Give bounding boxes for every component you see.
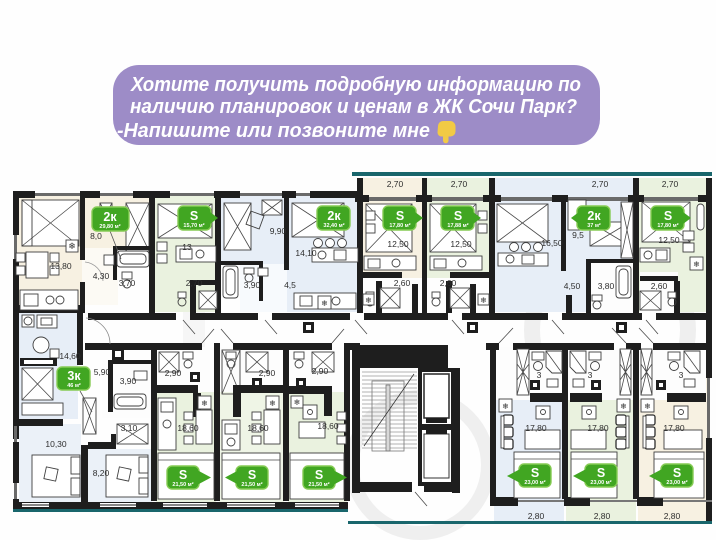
svg-text:❄: ❄ (693, 260, 700, 269)
svg-text:37 м²: 37 м² (587, 222, 601, 229)
svg-text:S: S (396, 209, 404, 223)
svg-text:2,80: 2,80 (594, 511, 611, 521)
svg-text:17,80 м²: 17,80 м² (657, 222, 678, 229)
svg-text:S: S (190, 209, 198, 223)
svg-text:23,00 м²: 23,00 м² (524, 479, 545, 486)
svg-text:15,70 м²: 15,70 м² (183, 222, 204, 229)
svg-text:3: 3 (679, 370, 684, 380)
svg-text:2,60: 2,60 (440, 278, 457, 288)
svg-text:3,80: 3,80 (598, 281, 615, 291)
svg-text:17,80: 17,80 (663, 423, 685, 433)
svg-text:5,90: 5,90 (94, 367, 111, 377)
svg-text:2,90: 2,90 (259, 368, 276, 378)
svg-text:32,40 м²: 32,40 м² (323, 222, 344, 229)
svg-text:S: S (597, 466, 605, 480)
svg-text:8,0: 8,0 (90, 231, 102, 241)
svg-text:10,30: 10,30 (45, 439, 67, 449)
svg-text:4,50: 4,50 (564, 281, 581, 291)
svg-text:❄: ❄ (620, 402, 627, 411)
svg-text:❄: ❄ (502, 402, 509, 411)
svg-text:2к: 2к (103, 210, 117, 224)
svg-text:14,60: 14,60 (59, 351, 81, 361)
svg-text:2,70: 2,70 (592, 179, 609, 189)
svg-text:21,50 м²: 21,50 м² (241, 481, 262, 488)
svg-text:Хотите получить подробную инфо: Хотите получить подробную информацию по (130, 74, 581, 96)
svg-text:23,00 м²: 23,00 м² (590, 479, 611, 486)
svg-text:18,60: 18,60 (247, 423, 269, 433)
svg-text:9,5: 9,5 (572, 230, 584, 240)
svg-text:S: S (531, 466, 539, 480)
svg-text:8,20: 8,20 (93, 468, 110, 478)
svg-text:2,60: 2,60 (651, 281, 668, 291)
svg-text:❄: ❄ (480, 296, 487, 305)
svg-text:3,90: 3,90 (120, 376, 137, 386)
svg-text:❄: ❄ (201, 399, 208, 408)
svg-text:12,50: 12,50 (450, 239, 472, 249)
svg-text:21,50 м²: 21,50 м² (172, 481, 193, 488)
svg-text:16,50: 16,50 (541, 238, 563, 248)
svg-text:2,70: 2,70 (387, 179, 404, 189)
svg-text:12,50: 12,50 (658, 235, 680, 245)
svg-text:❄: ❄ (321, 299, 328, 308)
svg-text:46 м²: 46 м² (67, 382, 81, 389)
svg-text:9,90: 9,90 (270, 226, 287, 236)
svg-text:2,80: 2,80 (528, 511, 545, 521)
svg-text:❄: ❄ (644, 402, 651, 411)
svg-text:наличию планировок и ценам в Ж: наличию планировок и ценам в ЖК Сочи Пар… (130, 96, 577, 118)
svg-text:S: S (248, 468, 256, 482)
svg-text:❄: ❄ (68, 241, 76, 251)
svg-text:12,50: 12,50 (387, 239, 409, 249)
svg-text:18,60: 18,60 (177, 423, 199, 433)
svg-text:2,70: 2,70 (186, 278, 203, 288)
svg-text:2,80: 2,80 (664, 511, 681, 521)
svg-text:3,90: 3,90 (244, 280, 261, 290)
svg-text:2,90: 2,90 (312, 366, 329, 376)
svg-text:S: S (315, 468, 323, 482)
svg-text:S: S (664, 209, 672, 223)
svg-text:S: S (673, 466, 681, 480)
svg-text:17,80: 17,80 (525, 423, 547, 433)
svg-text:13,80: 13,80 (50, 261, 72, 271)
svg-text:21,50 м²: 21,50 м² (308, 481, 329, 488)
svg-text:2к: 2к (327, 209, 341, 223)
svg-text:18,60: 18,60 (317, 421, 339, 431)
svg-text:S: S (454, 209, 462, 223)
svg-text:2,70: 2,70 (662, 179, 679, 189)
svg-text:❄: ❄ (365, 296, 372, 305)
svg-text:❄: ❄ (294, 398, 301, 407)
svg-text:4,30: 4,30 (93, 271, 110, 281)
svg-text:❄: ❄ (269, 399, 276, 408)
svg-text:17,88 м²: 17,88 м² (447, 222, 468, 229)
svg-text:13: 13 (182, 242, 192, 252)
svg-text:14,10: 14,10 (295, 248, 317, 258)
svg-text:3,70: 3,70 (119, 278, 136, 288)
svg-text:3: 3 (537, 370, 542, 380)
svg-text:3к: 3к (67, 369, 81, 383)
svg-text:17,80 м²: 17,80 м² (389, 222, 410, 229)
svg-text:29,80 м²: 29,80 м² (99, 223, 120, 230)
svg-text:2,60: 2,60 (394, 278, 411, 288)
svg-text:2,90: 2,90 (165, 368, 182, 378)
svg-text:23,00 м²: 23,00 м² (666, 479, 687, 486)
svg-text:3,10: 3,10 (121, 423, 138, 433)
svg-text:4,5: 4,5 (284, 280, 296, 290)
svg-text:S: S (179, 468, 187, 482)
svg-text:3: 3 (588, 370, 593, 380)
svg-text:-Напишите или позвоните мне: -Напишите или позвоните мне (117, 120, 430, 142)
svg-text:2к: 2к (587, 209, 601, 223)
svg-text:2,70: 2,70 (451, 179, 468, 189)
svg-text:17,80: 17,80 (587, 423, 609, 433)
